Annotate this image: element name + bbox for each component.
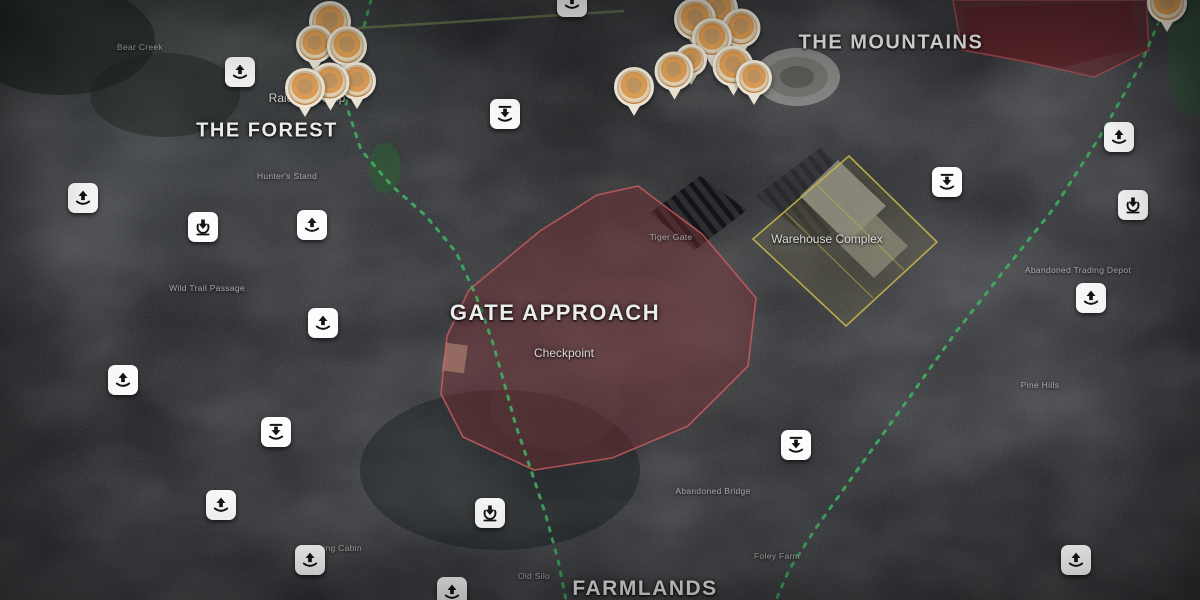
map-label-checkpoint: Checkpoint [534, 346, 594, 360]
upload-map-icon[interactable] [108, 365, 138, 395]
download-map-icon[interactable] [475, 498, 505, 528]
raiders-camp-cluster-pin[interactable] [327, 26, 367, 66]
region-label-the-forest: THE FOREST [196, 120, 338, 143]
upload-map-icon[interactable] [68, 183, 98, 213]
download-tray-map-icon[interactable] [490, 99, 520, 129]
upload-map-icon[interactable] [295, 545, 325, 575]
upload-map-icon[interactable] [1061, 545, 1091, 575]
map-label-hunter-s-stand: Hunter's Stand [257, 171, 317, 181]
upload-map-icon[interactable] [206, 490, 236, 520]
raiders-camp-cluster-pin[interactable] [285, 68, 325, 108]
download-tray-map-icon[interactable] [781, 430, 811, 460]
upload-map-icon[interactable] [308, 308, 338, 338]
region-label-farmlands: FARMLANDS [572, 577, 717, 600]
download-tray-map-icon[interactable] [261, 417, 291, 447]
upload-map-icon[interactable] [557, 0, 587, 17]
map-label-tiger-gate: Tiger Gate [650, 232, 693, 242]
upload-map-icon[interactable] [1104, 122, 1134, 152]
map-label-old-silo: Old Silo [518, 571, 550, 581]
mountains-cluster-pin[interactable] [614, 67, 654, 107]
map-label-bear-creek: Bear Creek [117, 42, 163, 52]
map-label-wild-trail-passage: Wild Trail Passage [169, 283, 245, 293]
mountains-cluster-pin[interactable] [736, 60, 772, 96]
download-map-icon[interactable] [1118, 190, 1148, 220]
region-label-the-mountains: THE MOUNTAINS [799, 32, 984, 55]
map-label-foley-farm: Foley Farm [754, 551, 800, 561]
map-label-pine-hills: Pine Hills [1021, 380, 1059, 390]
map-canvas[interactable]: THE FORESTTHE MOUNTAINSGATE APPROACHFARM… [0, 0, 1200, 600]
map-label-warehouse-complex: Warehouse Complex [771, 232, 883, 246]
map-label-abandoned-trading-depot: Abandoned Trading Depot [1025, 265, 1131, 275]
region-label-gate-approach: GATE APPROACH [450, 300, 660, 326]
map-label-abandoned-bridge: Abandoned Bridge [675, 486, 750, 496]
upload-map-icon[interactable] [437, 577, 467, 600]
download-tray-map-icon[interactable] [932, 167, 962, 197]
mountains-cluster-pin[interactable] [655, 52, 694, 91]
upload-map-icon[interactable] [1076, 283, 1106, 313]
download-map-icon[interactable] [188, 212, 218, 242]
foliage-patch [369, 142, 401, 194]
upload-map-icon[interactable] [225, 57, 255, 87]
upload-map-icon[interactable] [297, 210, 327, 240]
